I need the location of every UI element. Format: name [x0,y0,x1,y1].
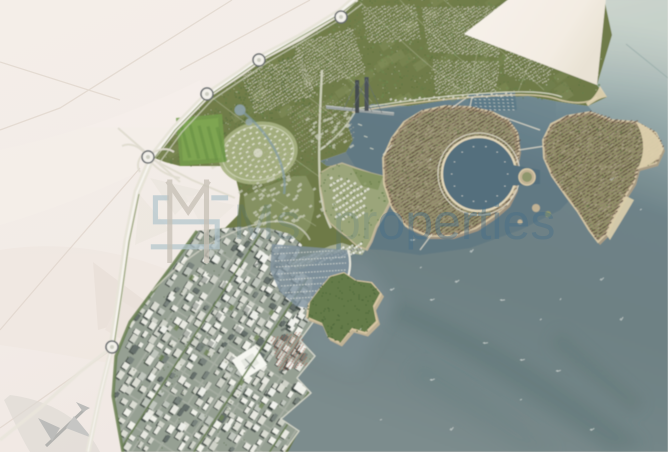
svg-text:Ms: Ms [233,194,302,250]
